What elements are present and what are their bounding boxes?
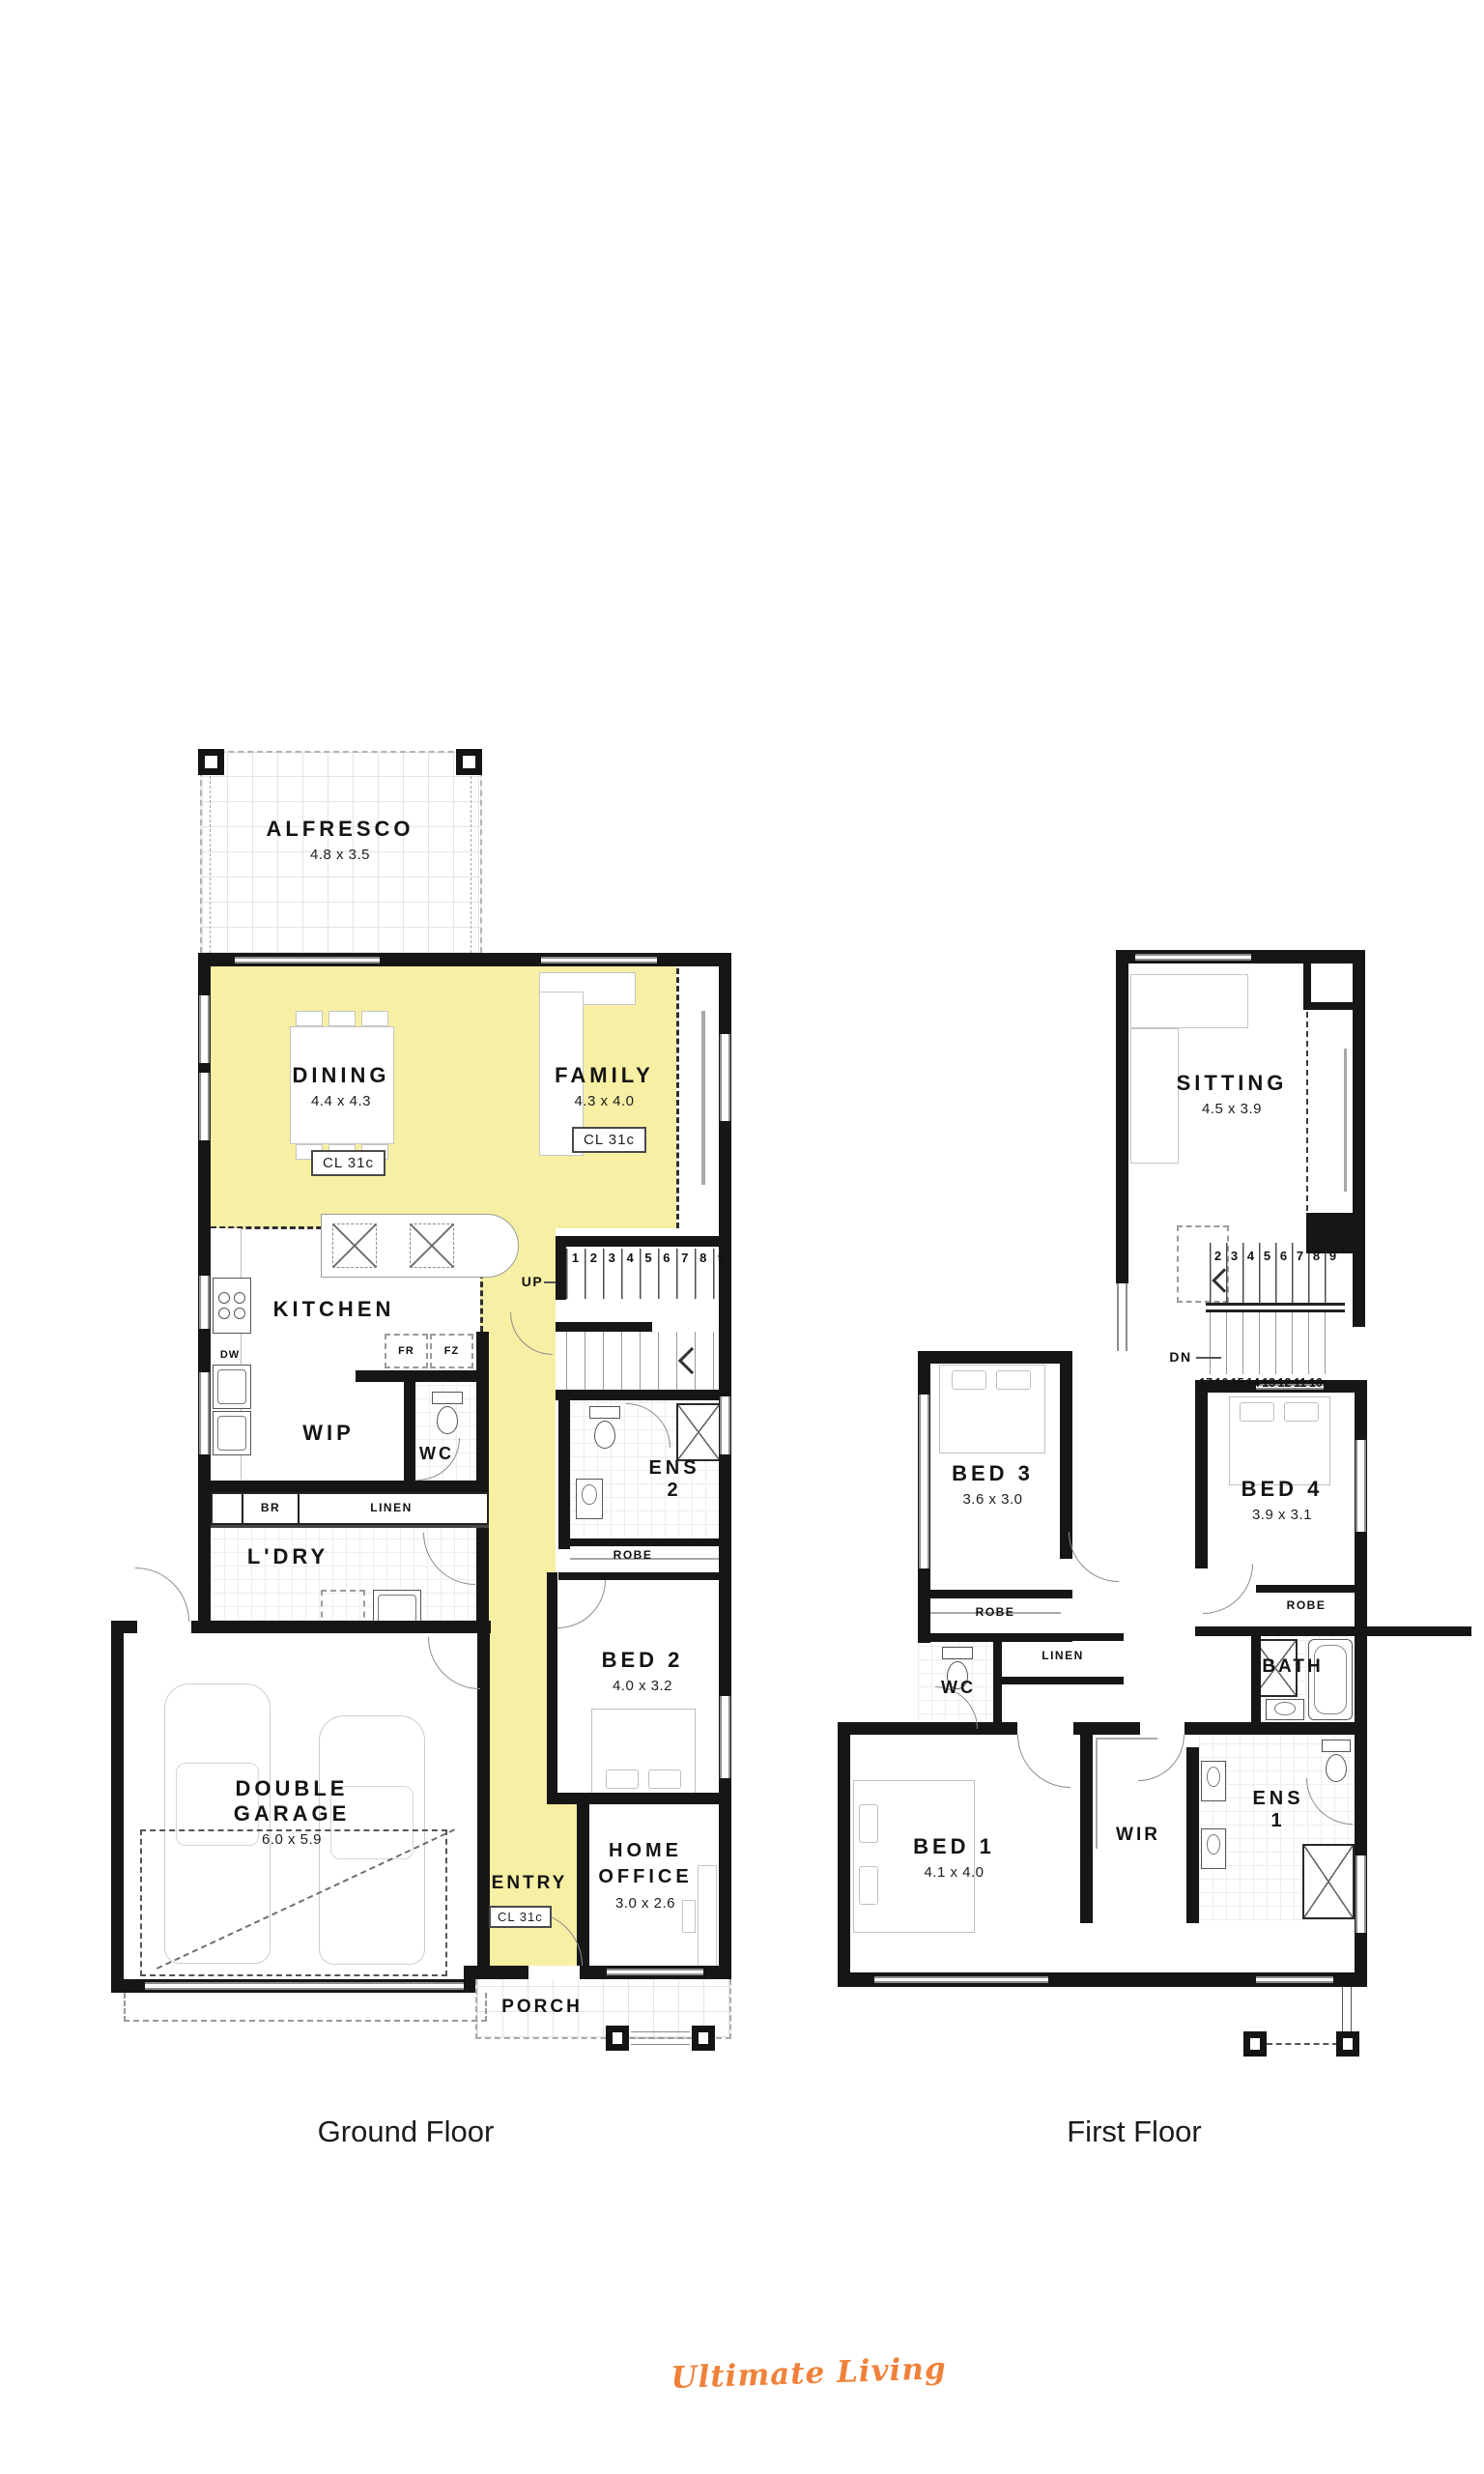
burner-icon [218, 1292, 230, 1304]
stove-fixture [213, 1278, 251, 1334]
step-number: 2 [585, 1251, 603, 1270]
entry-door-gap [528, 1966, 580, 1979]
door-swing-arc [428, 1637, 480, 1689]
bed1-door-gap [1017, 1722, 1073, 1735]
room-name: KITCHEN [259, 1297, 409, 1322]
pillow [1284, 1402, 1319, 1422]
room-number: 1 [1244, 1810, 1312, 1832]
window [720, 1034, 730, 1121]
shower-fixture [1302, 1844, 1355, 1919]
stair-rail [1206, 1303, 1345, 1312]
room-label-garage: DOUBLE GARAGE 6.0 x 5.9 [176, 1776, 408, 1848]
vanity-fixture [1201, 1828, 1226, 1869]
sliding-panel [701, 1011, 705, 1185]
step-number: 3 [603, 1251, 621, 1270]
room-name: BED 4 [1219, 1477, 1345, 1502]
window [199, 1372, 210, 1454]
wir-door-gap [1140, 1722, 1184, 1735]
wall-segment [1116, 950, 1128, 1283]
dining-chair [296, 1011, 323, 1026]
room-name: HOME OFFICE [591, 1838, 699, 1890]
room-label-wc: WC [929, 1678, 987, 1698]
step-number: 11 [1293, 1376, 1308, 1395]
sink-bowl [217, 1369, 246, 1404]
ceiling-badge: CL 31c [572, 1127, 646, 1153]
ground-floor-caption: Ground Floor [300, 2114, 512, 2149]
wall-segment [356, 1370, 489, 1382]
robe-label: ROBE [1264, 1598, 1349, 1612]
room-label-bed2: BED 2 4.0 x 3.2 [580, 1648, 705, 1694]
room-name: L'DRY [230, 1544, 346, 1569]
room-label-porch: PORCH [489, 1997, 595, 2018]
wall-segment [1195, 1380, 1208, 1568]
room-dims: 6.0 x 5.9 [176, 1831, 408, 1848]
sofa-furniture [1130, 974, 1248, 1028]
wall-segment [111, 1621, 124, 1993]
room-name: BED 1 [894, 1834, 1014, 1859]
window [1135, 954, 1251, 961]
stair-treads-lower [1210, 1312, 1341, 1374]
burner-icon [234, 1308, 245, 1319]
window [199, 1276, 210, 1329]
toilet-tank [942, 1647, 973, 1659]
sink-bowl [217, 1416, 246, 1451]
room-name: ENTRY [483, 1873, 576, 1894]
room-label-ens2: ENS 2 [638, 1457, 711, 1502]
window [1356, 1855, 1366, 1933]
wall-segment [993, 1641, 1002, 1730]
pillow [859, 1866, 878, 1905]
room-label-sitting: SITTING 4.5 x 3.9 [1155, 1071, 1309, 1117]
step-number: 7 [1292, 1249, 1308, 1268]
stair-step-numbers: 1 2 3 4 5 6 7 8 9 [566, 1251, 730, 1270]
step-number: 4 [621, 1251, 640, 1270]
burner-icon [218, 1308, 230, 1319]
room-name: WC [929, 1678, 987, 1698]
freezer-label: FZ [430, 1345, 473, 1357]
toilet-fixture [589, 1406, 620, 1449]
room-label-home-office: HOME OFFICE 3.0 x 2.6 [591, 1838, 699, 1912]
toilet-tank [1322, 1740, 1351, 1752]
porch-steps [631, 2031, 690, 2045]
basin-icon [582, 1484, 597, 1505]
bathtub-inner [1314, 1645, 1347, 1714]
room-label-bed3: BED 3 3.6 x 3.0 [932, 1461, 1053, 1508]
post-dash-line [1267, 2043, 1338, 2045]
burner-icon [234, 1292, 245, 1304]
step-number: 9 [1325, 1249, 1341, 1268]
pillow [606, 1769, 639, 1789]
wall-segment [547, 1572, 557, 1802]
step-number: 4 [1242, 1249, 1259, 1268]
wall-segment [1060, 1351, 1072, 1559]
vanity-fixture [1266, 1699, 1304, 1720]
pillow [996, 1370, 1031, 1390]
dishwasher-label: DW [211, 1349, 249, 1361]
room-name: PORCH [489, 1997, 595, 2018]
room-label-bed4: BED 4 3.9 x 3.1 [1219, 1477, 1345, 1523]
wall-segment [838, 1722, 850, 1987]
wall-segment [556, 1322, 652, 1332]
step-number: 1 [566, 1251, 585, 1270]
room-dims: 4.0 x 3.2 [580, 1678, 705, 1694]
cupboard-divider [298, 1492, 300, 1525]
room-dims: 4.4 x 4.3 [269, 1093, 414, 1109]
room-dims: 4.1 x 4.0 [894, 1864, 1014, 1881]
wall-segment [124, 1621, 137, 1633]
family-recess-dash [676, 968, 679, 1228]
step-number: 3 [1226, 1249, 1242, 1268]
linen-label: LINEN [319, 1501, 464, 1514]
room-name: DOUBLE GARAGE [176, 1776, 408, 1827]
window [720, 1396, 730, 1454]
pillow [1240, 1402, 1274, 1422]
dining-chair [328, 1011, 356, 1026]
step-number: 15 [1230, 1376, 1245, 1395]
sink-bowl [378, 1595, 416, 1624]
room-dims: 3.0 x 2.6 [591, 1895, 699, 1912]
alfresco-dashed-line [210, 776, 211, 953]
room-name: WIP [290, 1421, 367, 1446]
bed-furniture [939, 1365, 1045, 1453]
wall-segment [1186, 1747, 1199, 1923]
wall-segment [547, 1793, 731, 1804]
window [1256, 1976, 1333, 1983]
step-number: 8 [694, 1251, 712, 1270]
up-label: UP [518, 1274, 547, 1289]
pillar-core [205, 756, 217, 768]
room-label-ens1: ENS 1 [1244, 1788, 1312, 1832]
window [720, 1696, 730, 1778]
garage-door [145, 1982, 464, 1990]
toilet-fixture [432, 1392, 463, 1434]
family-recess [676, 968, 719, 1228]
room-label-family: FAMILY 4.3 x 4.0 [539, 1063, 670, 1109]
door-swing-arc [1069, 1532, 1119, 1582]
bathtub-fixture [1308, 1639, 1353, 1720]
room-name: BED 2 [580, 1648, 705, 1673]
window [607, 1969, 703, 1975]
pillar-core [463, 756, 475, 768]
pillar-core [613, 2032, 622, 2044]
wall-segment [918, 1590, 1072, 1598]
desk-furniture [698, 1865, 717, 1970]
toilet-bowl [437, 1406, 458, 1434]
floorplan-canvas: DW [0, 0, 1484, 2474]
wall-segment [556, 1236, 566, 1300]
step-number: 9 [712, 1251, 730, 1270]
room-dims: 4.8 x 3.5 [243, 847, 437, 863]
room-name: ALFRESCO [243, 817, 437, 842]
window [1356, 1440, 1366, 1532]
stair-step-numbers: 2 3 4 5 6 7 8 9 [1210, 1249, 1341, 1268]
pillow [952, 1370, 986, 1390]
dn-pointer-line [1196, 1357, 1221, 1359]
wall-segment [558, 1400, 570, 1549]
room-label-alfresco: ALFRESCO 4.8 x 3.5 [243, 817, 437, 863]
wall-segment [558, 1572, 731, 1580]
vanity-fixture [576, 1479, 603, 1519]
bed-furniture [1229, 1396, 1330, 1485]
window [199, 995, 210, 1063]
wall-segment [1303, 1002, 1365, 1010]
wall-segment [404, 1382, 415, 1481]
pillow [648, 1769, 681, 1789]
porch-pillar [692, 2026, 715, 2051]
wall-segment [1002, 1677, 1124, 1684]
room-name: BED 3 [932, 1461, 1053, 1486]
vanity-fixture [1201, 1761, 1226, 1801]
wall-segment [1303, 964, 1311, 1006]
window [874, 1976, 1048, 1983]
window [235, 957, 380, 964]
step-number: 8 [1308, 1249, 1325, 1268]
room-name: ENS [638, 1457, 711, 1480]
wall-segment [211, 1481, 489, 1492]
alfresco-dashed-line [471, 776, 471, 953]
stair-step-numbers: 17 16 15 14 13 12 11 10 [1198, 1376, 1324, 1395]
post-connector [1342, 1987, 1352, 2033]
room-dims: 3.6 x 3.0 [932, 1491, 1053, 1508]
room-label-dining: DINING 4.4 x 4.3 [269, 1063, 414, 1109]
wall-segment [556, 1236, 731, 1247]
porch-pillar [606, 2026, 629, 2051]
step-number: 12 [1276, 1376, 1292, 1395]
mirror-panel [1344, 1049, 1347, 1192]
step-number: 5 [640, 1251, 658, 1270]
wir-shelf [1096, 1738, 1098, 1849]
pillar-core [699, 2032, 708, 2044]
room-name: BATH [1246, 1656, 1339, 1678]
post-pillar [1336, 2031, 1359, 2057]
room-number: 2 [638, 1480, 711, 1502]
dining-chair [361, 1011, 388, 1026]
room-name: WC [410, 1444, 464, 1464]
br-label: BR [243, 1501, 298, 1514]
room-label-wc: WC [410, 1444, 464, 1464]
step-number: 6 [657, 1251, 675, 1270]
room-name: FAMILY [539, 1063, 670, 1088]
door-swing-arc [135, 1568, 189, 1622]
room-label-wir: WIR [1107, 1825, 1169, 1846]
robe-label: ROBE [570, 1548, 696, 1562]
brand-logo: Ultimate Living [639, 2350, 978, 2397]
room-label-entry: ENTRY [483, 1873, 576, 1894]
basin-icon [1274, 1702, 1297, 1715]
ceiling-badge: CL 31c [489, 1906, 552, 1928]
wall-segment [1256, 1585, 1355, 1593]
door-swing-arc [1203, 1564, 1253, 1614]
bed-furniture [591, 1709, 696, 1796]
stair-treads-lower [566, 1332, 730, 1390]
linen-label: LINEN [1007, 1649, 1119, 1662]
step-number: 14 [1245, 1376, 1261, 1395]
basin-icon [1207, 1767, 1220, 1787]
room-label-bath: BATH [1246, 1656, 1339, 1678]
robe-label: ROBE [929, 1605, 1061, 1619]
pillow [859, 1804, 878, 1843]
room-label-wip: WIP [290, 1421, 367, 1446]
step-number: 6 [1275, 1249, 1292, 1268]
step-number: 10 [1308, 1376, 1324, 1395]
pillar-core [1250, 2038, 1260, 2050]
door-swing-arc [557, 1580, 606, 1628]
room-name: SITTING [1155, 1071, 1309, 1096]
room-name: DINING [269, 1063, 414, 1088]
room-name: WIR [1107, 1825, 1169, 1846]
window [919, 1395, 929, 1568]
room-label-kitchen: KITCHEN [259, 1297, 409, 1322]
toilet-bowl [594, 1421, 615, 1449]
toilet-tank [432, 1392, 463, 1404]
wall-segment [1080, 1722, 1093, 1923]
ldry-top-line [211, 1525, 489, 1528]
step-number: 2 [1210, 1249, 1226, 1268]
wall-segment [1306, 1213, 1365, 1253]
door-swing-arc [1138, 1735, 1184, 1781]
wall-segment [556, 1390, 731, 1400]
wall-segment [918, 1351, 1072, 1364]
post-pillar [1243, 2031, 1267, 2057]
door-swing-arc [1017, 1735, 1070, 1788]
dn-label: DN [1165, 1349, 1196, 1365]
kitchen-sink-fixture [213, 1365, 251, 1409]
toilet-fixture [1322, 1740, 1351, 1782]
wall-segment [1002, 1633, 1124, 1641]
room-name: ENS [1244, 1788, 1312, 1810]
first-floor-caption: First Floor [1028, 2114, 1241, 2149]
room-dims: 4.5 x 3.9 [1155, 1101, 1309, 1117]
window [541, 957, 657, 964]
toilet-tank [589, 1406, 620, 1419]
alfresco-pillar [456, 749, 482, 775]
step-number: 16 [1213, 1376, 1229, 1395]
window [1117, 1283, 1127, 1351]
wall-segment [191, 1621, 491, 1633]
island-cross-box [410, 1223, 454, 1268]
wall-segment [1251, 1636, 1261, 1722]
step-number: 5 [1259, 1249, 1275, 1268]
room-dims: 3.9 x 3.1 [1219, 1507, 1345, 1523]
garage-apron [124, 1993, 487, 2022]
wall-segment [838, 1722, 1364, 1735]
step-number: 13 [1261, 1376, 1276, 1395]
kitchen-sink-fixture [213, 1411, 251, 1455]
step-number: 17 [1198, 1376, 1213, 1395]
room-label-ldry: L'DRY [230, 1544, 346, 1569]
island-cross-box [332, 1223, 377, 1268]
alfresco-pillar [198, 749, 224, 775]
step-number: 7 [675, 1251, 694, 1270]
wall-segment [577, 1804, 589, 1968]
pillar-core [1343, 2038, 1353, 2050]
wall-segment [558, 1539, 731, 1546]
ceiling-badge: CL 31c [311, 1150, 385, 1176]
shower-fixture [676, 1403, 721, 1461]
basin-icon [1207, 1834, 1220, 1855]
wall-segment [1195, 1626, 1471, 1636]
room-dims: 4.3 x 4.0 [539, 1093, 670, 1109]
fridge-label: FR [385, 1345, 428, 1357]
room-label-bed1: BED 1 4.1 x 4.0 [894, 1834, 1014, 1881]
window [199, 1073, 210, 1140]
